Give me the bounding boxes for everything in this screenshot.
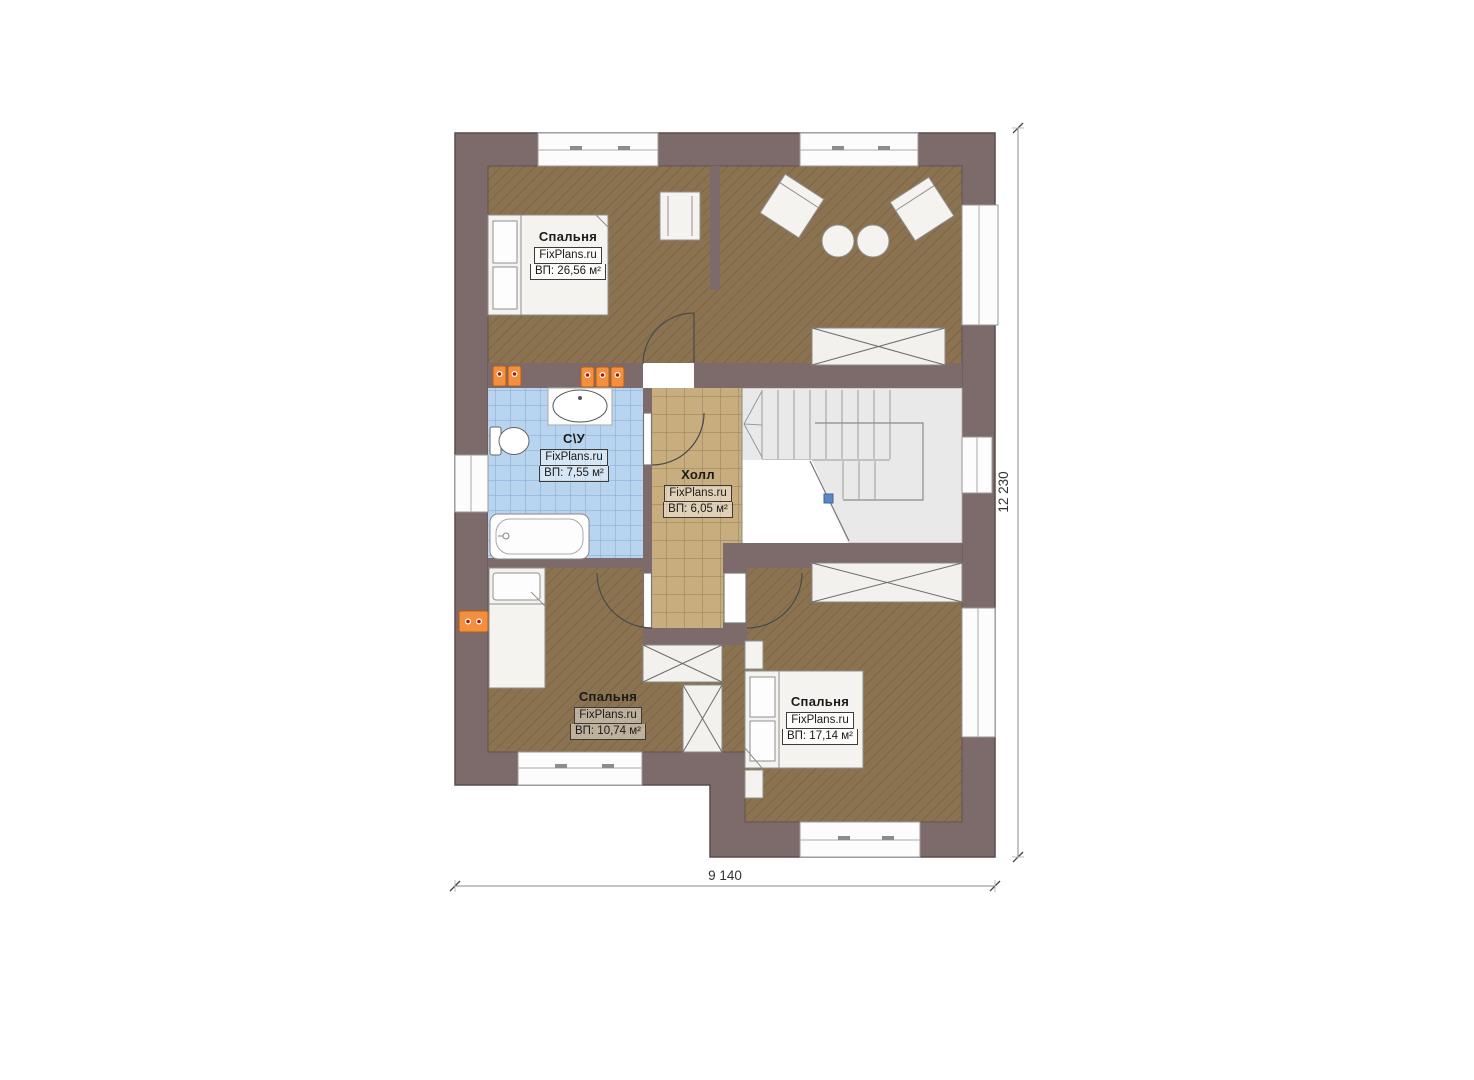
wardrobe-hall-bottom	[643, 645, 722, 682]
door-leaf-bedroom-br	[724, 573, 746, 623]
room-name: Спальня	[539, 229, 597, 244]
floor-plan-drawing: 9 140 12 230	[0, 0, 1474, 1080]
room-area: ВП: 7,55 м²	[539, 466, 609, 482]
room-name: С\У	[563, 431, 585, 446]
wall-hall-right-lower	[723, 622, 747, 645]
room-label-bedroom-bottom-left: Спальня FixPlans.ru ВП: 10,74 м²	[560, 689, 656, 740]
wardrobe-nook	[683, 685, 722, 752]
dimension-width-label: 9 140	[708, 868, 742, 883]
wardrobe-lounge	[812, 328, 945, 365]
door-opening-bedroom-top	[643, 363, 694, 388]
brand-watermark: FixPlans.ru	[540, 449, 608, 466]
room-name: Спальня	[791, 694, 849, 709]
toilet	[490, 427, 529, 455]
brand-watermark: FixPlans.ru	[534, 247, 602, 264]
bathtub	[490, 514, 589, 559]
room-label-bedroom-bottom-right: Спальня FixPlans.ru ВП: 17,14 м²	[773, 694, 867, 745]
brand-watermark: FixPlans.ru	[574, 707, 642, 724]
door-leaf-bath	[644, 413, 652, 465]
room-label-bedroom-top: Спальня FixPlans.ru ВП: 26,56 м²	[520, 229, 616, 280]
stairs-newel-dot	[824, 494, 833, 503]
wardrobe-bedroom-br	[812, 563, 962, 602]
dimension-vertical	[1012, 123, 1024, 862]
nightstand-br-upper	[745, 641, 763, 669]
wall-bath-hall-upper	[643, 388, 652, 413]
sink	[548, 388, 612, 425]
room-name: Холл	[681, 467, 715, 482]
wall-top-partition	[710, 166, 720, 290]
round-table-left	[822, 225, 854, 257]
wall-bath-hall-lower	[643, 465, 652, 573]
radiator-group-wall-right	[581, 367, 624, 387]
nightstand-br-lower	[745, 770, 763, 798]
window-right-lounge	[962, 205, 998, 325]
floor-plan-page: 9 140 12 230 Спальня FixPlans.ru ВП: 26,…	[0, 0, 1474, 1080]
radiator-left-wall	[459, 611, 488, 632]
door-leaf-bedroom-bl	[644, 573, 652, 628]
room-area: ВП: 10,74 м²	[570, 724, 646, 740]
dimension-height-label: 12 230	[996, 471, 1011, 512]
room-area: ВП: 17,14 м²	[782, 729, 858, 745]
room-name: Спальня	[579, 689, 637, 704]
round-table-right	[857, 225, 889, 257]
brand-watermark: FixPlans.ru	[664, 485, 732, 502]
room-area: ВП: 6,05 м²	[663, 502, 733, 518]
single-bed	[489, 568, 545, 688]
room-label-bathroom: С\У FixPlans.ru ВП: 7,55 м²	[534, 431, 614, 482]
room-label-hall: Холл FixPlans.ru ВП: 6,05 м²	[656, 467, 740, 518]
nightstand-top	[660, 192, 700, 240]
wall-middle	[488, 363, 962, 388]
room-area: ВП: 26,56 м²	[530, 264, 606, 280]
brand-watermark: FixPlans.ru	[786, 712, 854, 729]
